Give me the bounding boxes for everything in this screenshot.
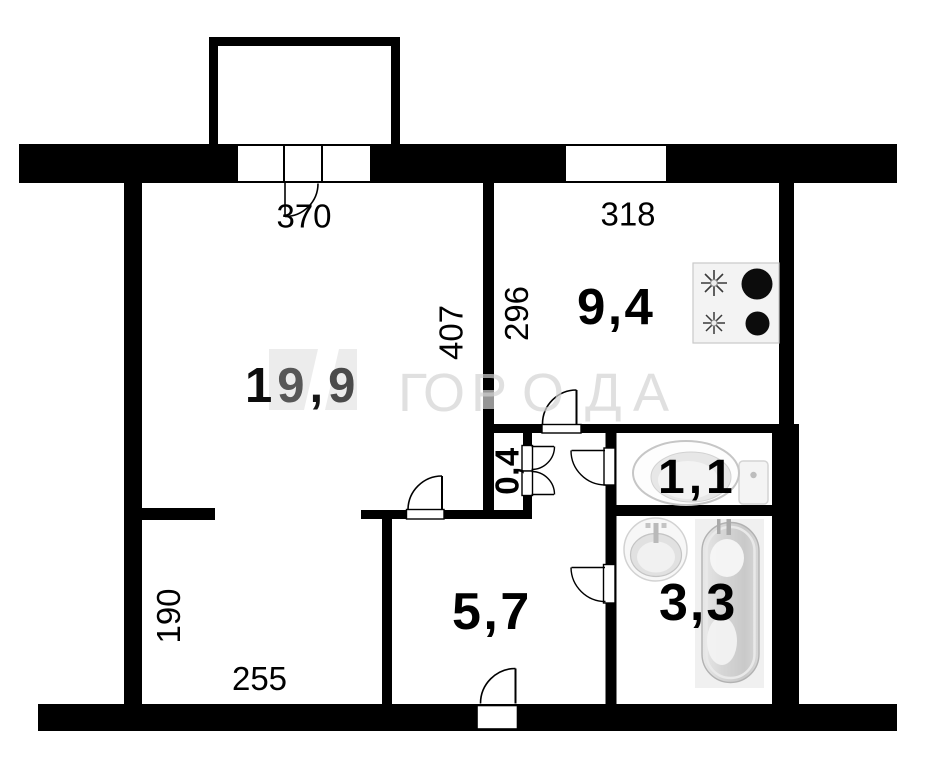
svg-text:19,9: 19,9 xyxy=(245,359,360,413)
svg-text:296: 296 xyxy=(498,286,535,341)
svg-text:255: 255 xyxy=(232,660,287,697)
svg-text:9,4: 9,4 xyxy=(577,278,655,335)
svg-text:407: 407 xyxy=(433,305,470,360)
svg-text:0,4: 0,4 xyxy=(489,447,526,495)
svg-text:190: 190 xyxy=(150,588,187,643)
svg-text:5,7: 5,7 xyxy=(452,583,532,641)
svg-text:3,3: 3,3 xyxy=(659,574,737,632)
svg-text:370: 370 xyxy=(276,198,331,235)
svg-text:1,1: 1,1 xyxy=(658,451,737,504)
svg-text:318: 318 xyxy=(600,196,655,233)
